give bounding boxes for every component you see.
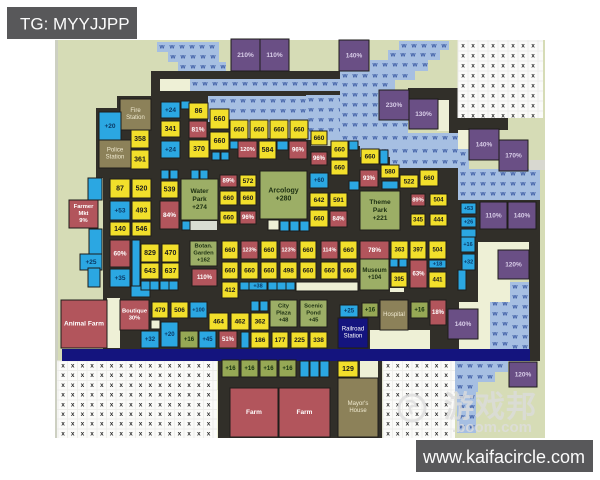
svg-text:House: House <box>349 408 367 414</box>
svg-text:x: x <box>110 382 114 389</box>
svg-text:w: w <box>341 122 348 129</box>
svg-text:660: 660 <box>225 268 236 275</box>
svg-text:w: w <box>341 112 348 119</box>
svg-text:w: w <box>401 159 408 166</box>
svg-text:w: w <box>279 98 286 105</box>
svg-text:x: x <box>406 430 410 437</box>
svg-text:x: x <box>197 401 201 408</box>
svg-text:x: x <box>491 43 495 50</box>
svg-text:x: x <box>425 382 429 389</box>
svg-text:x: x <box>81 363 85 370</box>
svg-text:140%: 140% <box>455 321 472 328</box>
svg-text:Station: Station <box>126 115 145 121</box>
svg-text:177: 177 <box>275 337 286 344</box>
svg-text:w: w <box>229 98 236 105</box>
svg-text:w: w <box>399 52 406 59</box>
svg-text:Station: Station <box>106 155 125 161</box>
svg-text:w: w <box>341 135 348 142</box>
svg-text:x: x <box>481 103 485 110</box>
svg-text:w: w <box>371 82 378 89</box>
svg-text:w: w <box>361 135 368 142</box>
svg-text:51%: 51% <box>222 337 235 343</box>
svg-text:660: 660 <box>264 268 275 275</box>
svg-text:w: w <box>327 127 334 134</box>
svg-text:w: w <box>521 284 528 291</box>
svg-text:x: x <box>461 83 465 90</box>
svg-text:w: w <box>317 107 324 114</box>
svg-text:x: x <box>100 411 104 418</box>
svg-text:w: w <box>456 384 463 391</box>
svg-text:660: 660 <box>274 127 285 134</box>
svg-text:+20: +20 <box>104 123 115 130</box>
svg-text:x: x <box>81 411 85 418</box>
svg-text:x: x <box>158 363 162 370</box>
svg-text:x: x <box>425 392 429 399</box>
svg-text:x: x <box>386 372 390 379</box>
svg-text:x: x <box>129 411 133 418</box>
svg-text:186: 186 <box>255 337 266 344</box>
svg-text:x: x <box>90 382 94 389</box>
svg-text:w: w <box>420 43 427 50</box>
svg-text:w: w <box>341 92 348 99</box>
svg-text:x: x <box>471 63 475 70</box>
svg-text:w: w <box>371 62 378 69</box>
svg-text:w: w <box>466 374 473 381</box>
svg-text:660: 660 <box>223 215 234 222</box>
svg-text:493: 493 <box>136 208 148 215</box>
svg-text:397: 397 <box>413 248 424 254</box>
svg-text:x: x <box>148 411 152 418</box>
svg-text:w: w <box>499 171 506 178</box>
svg-text:Arcology: Arcology <box>268 187 298 194</box>
svg-text:x: x <box>425 430 429 437</box>
svg-text:x: x <box>444 372 448 379</box>
svg-text:w: w <box>307 97 314 104</box>
svg-text:x: x <box>481 93 485 100</box>
svg-text:225: 225 <box>294 337 305 344</box>
svg-text:591: 591 <box>333 197 344 204</box>
svg-text:x: x <box>71 382 75 389</box>
svg-text:w: w <box>259 98 266 105</box>
svg-text:x: x <box>207 401 211 408</box>
svg-text:x: x <box>168 372 172 379</box>
svg-text:x: x <box>71 430 75 437</box>
svg-text:x: x <box>207 430 211 437</box>
svg-text:x: x <box>531 43 535 50</box>
svg-text:+25: +25 <box>344 309 355 315</box>
svg-text:w: w <box>501 341 508 348</box>
svg-text:x: x <box>511 113 515 120</box>
svg-text:x: x <box>491 53 495 60</box>
svg-text:w: w <box>371 122 378 129</box>
svg-text:522: 522 <box>404 179 415 186</box>
svg-text:78%: 78% <box>368 247 381 254</box>
svg-text:660: 660 <box>303 247 314 254</box>
svg-text:w: w <box>411 62 418 69</box>
svg-text:140: 140 <box>114 226 126 233</box>
svg-text:x: x <box>521 93 525 100</box>
svg-text:x: x <box>100 363 104 370</box>
svg-text:x: x <box>461 63 465 70</box>
svg-text:x: x <box>178 401 182 408</box>
svg-text:96%: 96% <box>292 148 305 154</box>
svg-text:w: w <box>431 148 438 155</box>
svg-text:x: x <box>521 53 525 60</box>
svg-text:x: x <box>396 392 400 399</box>
svg-text:w: w <box>299 108 306 115</box>
svg-text:x: x <box>425 372 429 379</box>
svg-text:170%: 170% <box>505 153 522 160</box>
svg-text:x: x <box>61 430 65 437</box>
svg-text:w: w <box>271 81 278 88</box>
svg-text:w: w <box>440 43 447 50</box>
svg-text:506: 506 <box>174 307 185 314</box>
svg-text:660: 660 <box>234 127 245 134</box>
svg-text:w: w <box>188 44 195 51</box>
svg-text:w: w <box>519 171 526 178</box>
svg-text:x: x <box>471 113 475 120</box>
svg-text:x: x <box>415 411 419 418</box>
svg-text:w: w <box>391 135 398 142</box>
svg-text:x: x <box>148 401 152 408</box>
svg-text:TG: MYYJJPP: TG: MYYJJPP <box>20 15 130 34</box>
svg-text:w: w <box>401 62 408 69</box>
svg-text:x: x <box>511 43 515 50</box>
svg-text:w: w <box>501 311 508 318</box>
svg-text:x: x <box>158 401 162 408</box>
svg-text:x: x <box>406 411 410 418</box>
svg-text:w: w <box>221 81 228 88</box>
svg-text:x: x <box>491 103 495 110</box>
svg-text:x: x <box>461 113 465 120</box>
svg-text:w: w <box>459 171 466 178</box>
svg-text:w: w <box>371 92 378 99</box>
svg-text:w: w <box>456 374 463 381</box>
svg-text:w: w <box>249 98 256 105</box>
svg-text:+32: +32 <box>145 337 156 343</box>
svg-text:x: x <box>444 363 448 370</box>
svg-text:x: x <box>100 421 104 428</box>
svg-text:x: x <box>461 43 465 50</box>
svg-text:x: x <box>435 363 439 370</box>
svg-text:w: w <box>459 161 466 168</box>
svg-text:www.kaifacircle.com: www.kaifacircle.com <box>422 447 585 467</box>
svg-text:x: x <box>71 392 75 399</box>
svg-text:w: w <box>401 73 408 80</box>
svg-text:w: w <box>529 171 536 178</box>
svg-text:x: x <box>168 363 172 370</box>
svg-text:w: w <box>509 191 516 198</box>
svg-text:Garden: Garden <box>193 251 214 257</box>
svg-text:x: x <box>444 430 448 437</box>
svg-text:+16: +16 <box>282 366 293 372</box>
svg-text:w: w <box>341 82 348 89</box>
svg-text:x: x <box>396 430 400 437</box>
svg-text:w: w <box>509 171 516 178</box>
svg-text:Police: Police <box>107 147 124 153</box>
svg-text:x: x <box>158 392 162 399</box>
svg-text:81%: 81% <box>191 127 204 134</box>
svg-text:w: w <box>401 135 408 142</box>
svg-text:x: x <box>178 411 182 418</box>
svg-text:x: x <box>129 421 133 428</box>
svg-text:660: 660 <box>243 195 254 202</box>
svg-text:w: w <box>209 98 216 105</box>
svg-text:x: x <box>187 363 191 370</box>
svg-text:140%: 140% <box>346 53 363 60</box>
svg-text:412: 412 <box>225 287 236 294</box>
svg-text:x: x <box>386 382 390 389</box>
svg-text:w: w <box>469 191 476 198</box>
svg-text:w: w <box>491 321 498 328</box>
svg-text:x: x <box>197 363 201 370</box>
svg-text:w: w <box>199 54 206 61</box>
svg-text:w: w <box>219 64 226 71</box>
svg-text:w: w <box>451 148 458 155</box>
svg-text:w: w <box>211 81 218 88</box>
svg-text:Mayor's: Mayor's <box>348 401 369 407</box>
svg-text:x: x <box>61 372 65 379</box>
svg-text:w: w <box>371 73 378 80</box>
svg-text:City: City <box>278 304 290 310</box>
svg-text:w: w <box>299 98 306 105</box>
svg-text:x: x <box>521 103 525 110</box>
svg-text:x: x <box>139 363 143 370</box>
svg-text:123%: 123% <box>281 248 295 254</box>
svg-text:x: x <box>148 430 152 437</box>
svg-text:x: x <box>207 363 211 370</box>
svg-text:x: x <box>406 382 410 389</box>
svg-text:w: w <box>430 43 437 50</box>
svg-text:w: w <box>421 159 428 166</box>
svg-text:w: w <box>479 171 486 178</box>
svg-text:x: x <box>81 401 85 408</box>
svg-text:w: w <box>381 82 388 89</box>
svg-text:w: w <box>351 102 358 109</box>
svg-text:x: x <box>119 372 123 379</box>
svg-text:w: w <box>521 314 528 321</box>
svg-text:x: x <box>110 392 114 399</box>
svg-text:x: x <box>511 83 515 90</box>
svg-text:x: x <box>168 382 172 389</box>
svg-text:w: w <box>231 81 238 88</box>
svg-text:x: x <box>110 372 114 379</box>
svg-text:+53: +53 <box>464 206 473 212</box>
svg-text:x: x <box>511 63 515 70</box>
svg-text:w: w <box>491 331 498 338</box>
svg-text:x: x <box>471 103 475 110</box>
svg-text:w: w <box>519 181 526 188</box>
svg-text:Hospital: Hospital <box>383 312 405 318</box>
svg-text:361: 361 <box>134 157 146 164</box>
svg-text:Park: Park <box>373 207 388 214</box>
svg-text:+16: +16 <box>244 366 255 372</box>
svg-text:w: w <box>519 191 526 198</box>
svg-text:w: w <box>178 44 185 51</box>
svg-text:w: w <box>189 54 196 61</box>
svg-text:x: x <box>481 53 485 60</box>
svg-text:345: 345 <box>413 218 424 224</box>
svg-text:660: 660 <box>324 268 335 275</box>
svg-text:w: w <box>189 64 196 71</box>
svg-text:w: w <box>361 73 368 80</box>
svg-text:w: w <box>209 64 216 71</box>
svg-text:Museum: Museum <box>362 268 386 274</box>
svg-text:w: w <box>421 62 428 69</box>
svg-text:w: w <box>317 117 324 124</box>
svg-text:x: x <box>471 43 475 50</box>
svg-text:+18: +18 <box>433 262 444 268</box>
svg-text:x: x <box>187 430 191 437</box>
svg-text:w: w <box>371 135 378 142</box>
svg-text:479: 479 <box>155 307 166 314</box>
svg-text:w: w <box>208 44 215 51</box>
svg-text:x: x <box>139 430 143 437</box>
svg-text:358: 358 <box>134 136 146 143</box>
svg-text:x: x <box>129 401 133 408</box>
svg-text:9%: 9% <box>79 218 87 224</box>
svg-text:w: w <box>341 73 348 80</box>
svg-text:w: w <box>521 304 528 311</box>
svg-text:660: 660 <box>223 195 234 202</box>
svg-text:x: x <box>521 73 525 80</box>
svg-text:129: 129 <box>342 366 354 373</box>
svg-text:110%: 110% <box>485 213 501 220</box>
svg-text:x: x <box>139 421 143 428</box>
svg-text:w: w <box>521 324 528 331</box>
svg-text:x: x <box>197 382 201 389</box>
svg-text:x: x <box>386 363 390 370</box>
svg-text:498: 498 <box>283 268 294 275</box>
svg-text:x: x <box>61 401 65 408</box>
svg-text:w: w <box>179 64 186 71</box>
svg-text:w: w <box>198 44 205 51</box>
svg-text:w: w <box>327 107 334 114</box>
svg-text:w: w <box>489 181 496 188</box>
svg-text:x: x <box>501 113 505 120</box>
svg-text:x: x <box>178 382 182 389</box>
svg-text:w: w <box>511 284 518 291</box>
svg-text:87: 87 <box>116 186 124 193</box>
svg-text:w: w <box>501 321 508 328</box>
svg-text:w: w <box>269 108 276 115</box>
svg-text:w: w <box>431 159 438 166</box>
svg-text:w: w <box>499 191 506 198</box>
svg-text:x: x <box>158 372 162 379</box>
svg-text:x: x <box>197 411 201 418</box>
svg-text:+60: +60 <box>314 178 325 184</box>
svg-text:x: x <box>119 411 123 418</box>
svg-text:x: x <box>197 430 201 437</box>
svg-text:w: w <box>317 97 324 104</box>
svg-text:x: x <box>501 93 505 100</box>
svg-text:+16: +16 <box>225 366 236 372</box>
svg-text:w: w <box>361 92 368 99</box>
svg-text:w: w <box>511 334 518 341</box>
svg-text:x: x <box>435 372 439 379</box>
svg-text:338: 338 <box>313 337 324 344</box>
svg-text:x: x <box>396 363 400 370</box>
svg-text:643: 643 <box>144 268 156 275</box>
svg-text:370: 370 <box>193 146 205 153</box>
svg-text:x: x <box>511 93 515 100</box>
svg-text:x: x <box>501 43 505 50</box>
svg-text:x: x <box>511 103 515 110</box>
svg-text:w: w <box>410 43 417 50</box>
svg-text:x: x <box>119 401 123 408</box>
svg-text:w: w <box>529 181 536 188</box>
svg-text:x: x <box>178 421 182 428</box>
svg-text:Plaza: Plaza <box>276 311 292 317</box>
svg-text:w: w <box>466 363 473 370</box>
svg-text:w: w <box>371 112 378 119</box>
svg-text:+16: +16 <box>184 337 195 343</box>
svg-text:w: w <box>168 44 175 51</box>
svg-text:w: w <box>456 363 463 370</box>
svg-text:w: w <box>169 54 176 61</box>
svg-text:x: x <box>501 73 505 80</box>
svg-text:x: x <box>158 421 162 428</box>
svg-text:w: w <box>191 81 198 88</box>
svg-text:x: x <box>521 43 525 50</box>
svg-text:x: x <box>471 93 475 100</box>
svg-text:+16: +16 <box>414 308 425 314</box>
svg-text:x: x <box>396 372 400 379</box>
svg-text:x: x <box>110 430 114 437</box>
svg-text:w: w <box>361 112 368 119</box>
svg-text:w: w <box>429 52 436 59</box>
svg-text:w: w <box>441 148 448 155</box>
svg-text:w: w <box>331 81 338 88</box>
svg-text:x: x <box>197 392 201 399</box>
svg-text:x: x <box>415 382 419 389</box>
svg-text:x: x <box>168 421 172 428</box>
svg-text:539: 539 <box>164 187 176 194</box>
svg-text:x: x <box>415 430 419 437</box>
svg-text:w: w <box>421 135 428 142</box>
svg-text:w: w <box>479 181 486 188</box>
svg-text:x: x <box>119 382 123 389</box>
svg-text:x: x <box>61 363 65 370</box>
svg-text:x: x <box>110 401 114 408</box>
svg-text:w: w <box>259 108 266 115</box>
svg-text:x: x <box>158 430 162 437</box>
svg-text:w: w <box>201 81 208 88</box>
svg-text:140%: 140% <box>476 142 493 149</box>
svg-text:441: 441 <box>432 278 443 284</box>
svg-text:w: w <box>391 62 398 69</box>
svg-text:w: w <box>289 98 296 105</box>
svg-text:x: x <box>207 372 211 379</box>
svg-text:w: w <box>351 122 358 129</box>
svg-text:x: x <box>444 382 448 389</box>
svg-text:x: x <box>81 392 85 399</box>
svg-text:w: w <box>479 191 486 198</box>
svg-text:x: x <box>168 411 172 418</box>
svg-text:w: w <box>307 117 314 124</box>
svg-text:x: x <box>139 382 143 389</box>
svg-text:w: w <box>351 73 358 80</box>
svg-text:Fire: Fire <box>130 108 141 114</box>
svg-text:w: w <box>400 43 407 50</box>
svg-text:+24: +24 <box>165 107 176 114</box>
svg-text:w: w <box>466 384 473 391</box>
svg-text:w: w <box>521 294 528 301</box>
svg-text:x: x <box>481 83 485 90</box>
svg-text:x: x <box>148 372 152 379</box>
svg-text:x: x <box>386 392 390 399</box>
svg-text:110%: 110% <box>266 52 282 59</box>
